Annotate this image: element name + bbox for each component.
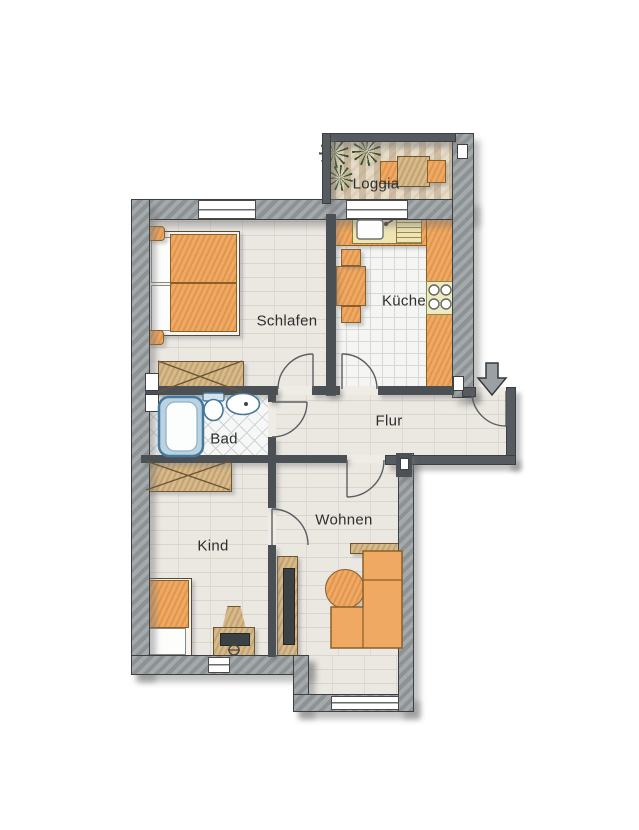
wohnen-floor-lower [300,655,400,698]
room-label-schlafen: Schlafen [257,313,318,330]
schlafen-door-threshold [278,386,312,395]
room-label-loggia: Loggia [353,176,400,193]
wall-bad-flur-upper [268,392,276,402]
wohnen-window [331,696,399,710]
wall-bad-flur-lower [268,437,276,457]
wall-bad-kind [141,455,347,463]
pillow [151,237,171,283]
schlafen-window [198,200,256,219]
mattress [145,580,189,628]
wall-niche [457,144,468,159]
room-label-kind: Kind [197,538,228,555]
single-bed [143,578,192,660]
wall-niche [453,376,464,391]
round-table [325,569,365,609]
wall-flur-top-mid [312,386,340,395]
kitchen-chair [341,306,361,323]
double-bed [148,231,240,336]
drainer [396,217,422,244]
sink-cabinet [352,216,398,244]
flur-wall-top [462,387,476,397]
balcony-chair [427,160,446,183]
flur-wall-right [506,387,516,465]
bad-door-threshold [268,402,276,437]
room-label-wohnen: Wohnen [315,512,372,529]
wohnen-door-threshold [347,455,385,463]
kitchen-table [336,266,366,306]
entrance-threshold [474,387,506,395]
mattress [170,283,237,332]
wall-kueche-flur [378,386,454,395]
room-label-bad: Bad [210,431,238,448]
computer-monitor [220,633,250,646]
wall-kind-wohnen-lower [268,545,276,657]
floor-plan: Loggia Schlafen Küche Bad Flur Kind Wohn… [0,0,639,830]
room-label-kueche: Küche [382,293,426,310]
balcony-table [397,156,430,187]
wall-kind-wohnen-upper [268,460,276,508]
wall-schlafen-kueche [326,214,336,396]
bad-floor [146,394,270,457]
loggia-wall-top [322,133,456,142]
kind-window [208,657,230,673]
wall-niche [400,458,409,470]
wall-niche [145,394,159,412]
kind-door-threshold [268,508,276,545]
kueche-door-threshold [340,386,378,395]
room-label-flur: Flur [375,413,402,430]
sofa-backrest [350,543,404,554]
loggia-wall-left [322,133,331,204]
pillow [151,285,171,331]
kitchen-chair [341,249,361,266]
loggia-door-window [346,200,408,219]
outer-wall-right [452,133,474,398]
pillow [147,628,186,655]
wardrobe [146,461,232,492]
outer-wall-top [131,199,474,220]
tv [283,568,295,645]
stove [426,281,455,315]
outer-wall-left [131,199,150,675]
mattress [170,234,237,283]
wall-schlafen-bad [145,386,278,395]
wall-niche [145,373,159,391]
outer-wall-wohnen-right [398,453,414,712]
